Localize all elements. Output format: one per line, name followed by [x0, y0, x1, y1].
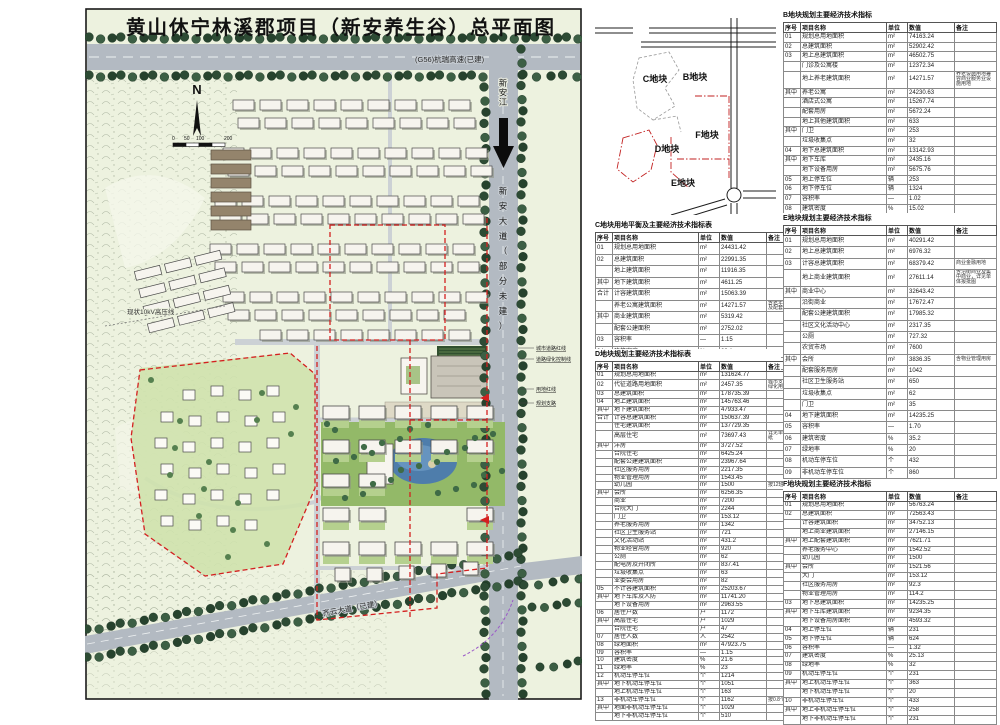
- indicator-table-F: F地块规划主要经济技术指标序号项目名称单位数值备注01规划总用地面积m²5676…: [783, 479, 996, 725]
- table-cell: 56763.24: [908, 502, 955, 511]
- table-row: 其中商业建筑面积m²5319.42: [596, 312, 809, 324]
- table-cell: 02: [784, 247, 801, 258]
- table-cell: 商业金融用地: [955, 258, 997, 269]
- table-cell: m²: [887, 528, 908, 537]
- table-cell: 计容总建筑面积: [801, 258, 887, 269]
- tree-icon: [254, 417, 260, 423]
- table-cell: m²: [887, 555, 908, 564]
- table-cell: 1.70: [908, 422, 955, 433]
- table-cell: 1029: [720, 617, 767, 625]
- table-cell: 个: [699, 689, 720, 697]
- tree-icon: [471, 585, 480, 594]
- townhouse-building: [304, 148, 325, 158]
- table-cell: [955, 195, 997, 205]
- tree-icon: [96, 35, 105, 44]
- table-cell: m²: [887, 502, 908, 511]
- townhouse-building: [319, 118, 340, 128]
- table-row: 养老服务用房m²1342: [596, 522, 809, 530]
- tree-icon: [480, 83, 489, 92]
- courtyard-green: [359, 556, 385, 564]
- table-row: 酒店式公寓m²15267.74: [784, 98, 997, 108]
- tree-icon: [482, 617, 491, 626]
- table-cell: 1500: [720, 482, 767, 490]
- townhouse-building: [345, 244, 366, 254]
- table-cell: 2752.02: [720, 323, 767, 335]
- townhouse-building: [449, 100, 470, 110]
- tree-icon: [415, 73, 424, 82]
- villa-building: [183, 494, 195, 504]
- table-cell: [784, 298, 801, 309]
- tree-icon: [518, 350, 527, 359]
- table-row: 10非机动车停车位个433: [784, 697, 997, 706]
- table-cell: m²: [699, 546, 720, 554]
- tree-icon: [173, 610, 182, 619]
- table-cell: [955, 309, 997, 320]
- table-header: 项目名称: [613, 362, 699, 372]
- townhouse-building: [400, 118, 421, 128]
- table-row: 幼儿园m²1500: [784, 555, 997, 564]
- townhouse-building: [341, 330, 362, 340]
- tree-icon: [481, 569, 490, 578]
- table-cell: [955, 456, 997, 467]
- table-cell: 社区服务用房: [801, 582, 887, 591]
- indicator-table-C: C地块用地平衡及主要经济技术指标表序号项目名称单位数值备注01规划总用地面积m²…: [595, 220, 781, 370]
- townhouse-building: [358, 148, 379, 158]
- table-cell: m²: [699, 458, 720, 466]
- table-cell: [955, 502, 997, 511]
- table-cell: m²: [887, 377, 908, 388]
- table-cell: 02: [596, 379, 613, 391]
- table-cell: 40291.42: [908, 236, 955, 247]
- tree-icon: [517, 118, 526, 127]
- table-cell: 地上其他建筑面积: [801, 117, 887, 127]
- table-cell: 地下停车位: [801, 635, 887, 644]
- table-header: 单位: [699, 233, 720, 243]
- tree-icon: [340, 71, 349, 80]
- table-cell: 地下非机动车停车位: [613, 713, 699, 721]
- table-cell: 地上建筑面积: [613, 399, 699, 407]
- townhouse-building: [431, 196, 452, 206]
- table-row: 02地上总建筑面积m²6976.32: [784, 247, 997, 258]
- table-cell: [784, 399, 801, 410]
- tree-icon: [215, 601, 224, 610]
- table-title: D地块规划主要经济技术指标表: [595, 349, 781, 359]
- table-header: 备注: [955, 23, 997, 33]
- table-cell: 地上总建筑面积: [801, 247, 887, 258]
- table-cell: m²: [887, 617, 908, 626]
- table-cell: [784, 107, 801, 117]
- townhouse-building: [390, 310, 411, 320]
- tree-icon: [482, 253, 491, 262]
- table-cell: 商业建筑面积: [613, 312, 699, 324]
- table-row: 01规划总用地面积m²56763.24: [784, 502, 997, 511]
- tree-icon: [282, 590, 291, 599]
- tree-icon: [518, 132, 527, 141]
- table-cell: 837.41: [720, 562, 767, 570]
- tree-icon: [435, 490, 441, 496]
- tree-icon: [140, 72, 149, 81]
- tree-icon: [517, 81, 526, 90]
- table-cell: m²: [887, 146, 908, 156]
- tree-icon: [212, 71, 221, 80]
- table-cell: 合院住宅: [613, 450, 699, 458]
- table-cell: 10: [784, 697, 801, 706]
- table-cell: [955, 411, 997, 422]
- tree-icon: [517, 482, 526, 491]
- townhouse-building: [385, 148, 406, 158]
- table-cell: —: [699, 649, 720, 657]
- tree-icon: [482, 108, 491, 117]
- table-cell: 860: [908, 467, 955, 478]
- tree-icon: [324, 421, 330, 427]
- table-cell: m²: [699, 490, 720, 498]
- tree-icon: [351, 454, 357, 460]
- table-cell: [955, 422, 997, 433]
- table-cell: 05: [784, 422, 801, 433]
- table-row: 配套公建建筑面积m²17985.32: [784, 309, 997, 320]
- table-row: 04地下总建筑面积m²13142.93: [784, 146, 997, 156]
- table-cell: 04: [784, 411, 801, 422]
- tree-icon: [517, 446, 526, 455]
- tree-icon: [458, 72, 467, 81]
- table-cell: 431.2: [720, 538, 767, 546]
- table-cell: 07: [784, 653, 801, 662]
- townhouse-building: [427, 118, 448, 128]
- tree-icon: [167, 472, 173, 478]
- tree-icon: [505, 580, 514, 589]
- table-cell: 个: [887, 706, 908, 715]
- table-cell: 1172: [720, 609, 767, 617]
- table-cell: 32643.42: [908, 286, 955, 297]
- table-cell: 容积率: [801, 644, 887, 653]
- leader-annotation: 道路绿化控制线: [536, 356, 571, 363]
- tree-icon: [459, 588, 468, 597]
- townhouse-building: [372, 244, 393, 254]
- townhouse-building: [363, 310, 384, 320]
- table-cell: [596, 466, 613, 474]
- table-title: B地块规划主要经济技术指标: [783, 10, 996, 20]
- townhouse-building: [274, 214, 295, 224]
- table-cell: 01: [784, 33, 801, 43]
- table-cell: 150637.39: [720, 415, 767, 423]
- tree-icon: [108, 34, 117, 43]
- table-cell: m²: [699, 289, 720, 301]
- brown-roof-building: [211, 150, 251, 160]
- apartment-building: [467, 406, 493, 419]
- tree-icon: [517, 190, 526, 199]
- apartment-building: [323, 508, 349, 521]
- table-cell: 2457.35: [720, 379, 767, 391]
- table-cell: m²: [887, 62, 908, 72]
- table-cell: 3727.52: [720, 442, 767, 450]
- table-row: 09机动车停车位个231: [784, 671, 997, 680]
- table-cell: 14235.25: [908, 599, 955, 608]
- townhouse-building: [301, 214, 322, 224]
- tree-icon: [481, 279, 490, 288]
- table-cell: [955, 697, 997, 706]
- table-cell: 容积率: [801, 195, 887, 205]
- table-cell: %: [887, 662, 908, 671]
- table-row: 业委会用房m²82: [596, 577, 809, 585]
- townhouse-building: [265, 118, 286, 128]
- tree-icon: [128, 73, 137, 82]
- table-cell: m²: [887, 166, 908, 176]
- tree-icon: [264, 541, 270, 547]
- tree-icon: [574, 35, 582, 44]
- table-row: 地上机动车停车位个163: [596, 689, 809, 697]
- table-cell: 14271.57: [720, 300, 767, 312]
- apartment-building: [467, 542, 493, 555]
- table-cell: —: [699, 335, 720, 347]
- tree-icon: [333, 458, 339, 464]
- table-row: 其中高层住宅户1029: [596, 617, 809, 625]
- table-cell: 其中: [596, 312, 613, 324]
- tree-icon: [160, 73, 169, 82]
- table-cell: 垃圾收集点: [801, 136, 887, 146]
- table-cell: [596, 506, 613, 514]
- townhouse-building: [404, 196, 425, 206]
- tree-icon: [558, 71, 567, 80]
- table-row: 09容积率—1.15: [596, 649, 809, 657]
- tree-icon: [201, 486, 207, 492]
- table-cell: m²: [699, 391, 720, 399]
- tree-icon: [194, 635, 203, 644]
- table-cell: 5675.76: [908, 166, 955, 176]
- tree-icon: [393, 600, 402, 609]
- table-row: 其中会所m²3836.35含物业管理用房: [784, 354, 997, 365]
- tree-icon: [480, 628, 489, 637]
- table-cell: [784, 320, 801, 331]
- townhouse-building: [453, 244, 474, 254]
- courtyard-green: [467, 522, 493, 530]
- townhouse-building: [412, 292, 433, 302]
- townhouse-building: [269, 196, 290, 206]
- table-cell: 1162: [720, 697, 767, 705]
- tree-icon: [519, 362, 528, 371]
- table-cell: [955, 555, 997, 564]
- table-cell: m²: [887, 608, 908, 617]
- tree-icon: [117, 71, 126, 80]
- tree-icon: [481, 133, 490, 142]
- table-cell: 社区卫生服务站: [801, 377, 887, 388]
- table-cell: 地下车库: [801, 156, 887, 166]
- table-row: 地下非机动车停车位个510: [596, 713, 809, 721]
- tree-icon: [248, 595, 257, 604]
- table-cell: 总建筑面积: [801, 42, 887, 52]
- table-cell: [596, 569, 613, 577]
- table-header: 序号: [784, 226, 801, 236]
- tree-icon: [438, 591, 447, 600]
- tree-icon: [148, 71, 157, 80]
- table-cell: m²: [699, 300, 720, 312]
- tree-icon: [256, 73, 265, 82]
- tree-icon: [379, 440, 385, 446]
- table-row: 物业经营用房m²920: [596, 546, 809, 554]
- apartment-building: [359, 406, 385, 419]
- table-row: 物业管理用房m²114.2: [784, 591, 997, 600]
- table-cell: [955, 528, 997, 537]
- tree-icon: [319, 73, 328, 82]
- table-cell: 2317.35: [908, 320, 955, 331]
- tree-icon: [447, 588, 456, 597]
- table-cell: 地上建筑面积: [613, 266, 699, 278]
- table-cell: 17672.47: [908, 298, 955, 309]
- table-cell: 04: [596, 399, 613, 407]
- table-cell: 计容建筑面积: [613, 289, 699, 301]
- tree-icon: [206, 459, 212, 465]
- courtyard-green: [359, 522, 385, 530]
- table-cell: 计容总建筑面积: [613, 415, 699, 423]
- table-cell: 62: [908, 388, 955, 399]
- table-title: E地块规划主要经济技术指标: [783, 213, 996, 223]
- table-cell: 地下设备用房: [613, 601, 699, 609]
- table-cell: [955, 166, 997, 176]
- leader-annotation: 城市道路红线: [536, 345, 566, 352]
- townhouse-building: [323, 196, 344, 206]
- tree-icon: [293, 404, 299, 410]
- townhouse-building: [314, 330, 335, 340]
- table-cell: 其中: [784, 537, 801, 546]
- table-cell: [955, 635, 997, 644]
- tree-icon: [519, 106, 528, 115]
- table-row: 10建筑密度%21.6: [596, 657, 809, 665]
- tower-building: [399, 566, 414, 579]
- townhouse-building: [431, 262, 452, 272]
- tree-icon: [235, 500, 241, 506]
- table-row: 地上商业建筑面积m²27611.14含沿街商业及集中商业，详见单体报批图: [784, 269, 997, 286]
- townhouse-building: [436, 214, 457, 224]
- table-cell: [955, 52, 997, 62]
- tree-icon: [480, 664, 489, 673]
- tree-icon: [517, 263, 526, 272]
- brown-roof-building: [211, 192, 251, 202]
- table-cell: m²: [699, 601, 720, 609]
- tree-icon: [244, 71, 253, 80]
- table-cell: [596, 522, 613, 530]
- table-row: 计容建筑面积m²34752.13: [784, 519, 997, 528]
- townhouse-building: [426, 244, 447, 254]
- table-cell: 农贸市场: [801, 343, 887, 354]
- table-cell: [955, 185, 997, 195]
- table-cell: 7200: [720, 498, 767, 506]
- table-row: 05地下停车位辆624: [784, 635, 997, 644]
- table-cell: [955, 117, 997, 127]
- table-cell: 72563.43: [908, 510, 955, 519]
- table-cell: [596, 530, 613, 538]
- table-cell: [955, 680, 997, 689]
- table-cell: 个: [887, 697, 908, 706]
- townhouse-building: [318, 244, 339, 254]
- table-cell: %: [699, 665, 720, 673]
- townhouse-building: [422, 330, 443, 340]
- table-cell: m²: [887, 33, 908, 43]
- tree-icon: [96, 73, 105, 82]
- table-cell: 2963.55: [720, 601, 767, 609]
- table-cell: [596, 577, 613, 585]
- table-cell: 规划总用地面积: [801, 502, 887, 511]
- villa-building: [245, 520, 257, 530]
- table-cell: 规划总用地面积: [613, 243, 699, 255]
- table-header: 序号: [784, 23, 801, 33]
- table-cell: 5319.42: [720, 312, 767, 324]
- table-cell: 其中: [784, 564, 801, 573]
- townhouse-building: [382, 214, 403, 224]
- townhouse-building: [368, 330, 389, 340]
- table-cell: 1051: [720, 681, 767, 689]
- table-cell: [784, 377, 801, 388]
- table-cell: 洋房: [613, 442, 699, 450]
- table-row: 07居住人数人2542: [596, 633, 809, 641]
- apartment-building: [359, 542, 385, 555]
- table-cell: [784, 689, 801, 698]
- table-cell: 6425.24: [720, 450, 767, 458]
- table-header: 单位: [887, 23, 908, 33]
- table-cell: 配套公建建筑面积: [613, 458, 699, 466]
- tree-icon: [425, 422, 431, 428]
- tree-icon: [85, 33, 93, 42]
- table-cell: [955, 127, 997, 137]
- table-cell: 1.02: [908, 195, 955, 205]
- table-row: 其中地下车库建筑面积m²9234.35: [784, 608, 997, 617]
- tree-icon: [518, 533, 527, 542]
- tree-icon: [299, 72, 308, 81]
- table-cell: [955, 510, 997, 519]
- villa-building: [239, 442, 251, 452]
- table-cell: 个: [887, 671, 908, 680]
- table-row: 03地下总建筑面积m²14235.25: [784, 599, 997, 608]
- table-cell: 会所: [801, 354, 887, 365]
- table-cell: 08: [596, 641, 613, 649]
- table-cell: 82: [720, 577, 767, 585]
- table-row: 01规划总用地面积m²74163.24: [784, 33, 997, 43]
- tree-icon: [148, 377, 154, 383]
- townhouse-building: [404, 262, 425, 272]
- townhouse-building: [250, 148, 271, 158]
- table-row: 地上养老建筑面积m²14271.57养老设施用地兼容商业服务业设施用地: [784, 71, 997, 88]
- table-cell: 住宅建筑面积: [613, 423, 699, 431]
- table-cell: 06: [784, 185, 801, 195]
- table-cell: 433: [908, 697, 955, 706]
- tree-icon: [519, 507, 528, 516]
- table-cell: 46502.75: [908, 52, 955, 62]
- table-cell: 规划总用地面积: [801, 236, 887, 247]
- table-cell: [955, 88, 997, 98]
- table-cell: 03: [784, 258, 801, 269]
- table-cell: m²: [699, 562, 720, 570]
- table-cell: 商业中心: [801, 286, 887, 297]
- tree-icon: [481, 206, 490, 215]
- townhouse-building: [296, 196, 317, 206]
- villa-building: [189, 520, 201, 530]
- table-cell: 1542.52: [908, 546, 955, 555]
- tree-icon: [149, 641, 158, 650]
- table-cell: 02: [784, 510, 801, 519]
- table-cell: m²: [699, 466, 720, 474]
- courtyard-green: [359, 420, 385, 428]
- townhouse-building: [439, 292, 460, 302]
- table-cell: 363: [908, 680, 955, 689]
- table-cell: 2542: [720, 633, 767, 641]
- table-row: 垃圾收集点m²63: [596, 569, 809, 577]
- tree-icon: [519, 252, 528, 261]
- courtyard-green: [395, 454, 421, 462]
- table-cell: 其中: [784, 127, 801, 137]
- table-row: 03总建筑面积m²178735.39: [596, 391, 809, 399]
- table-cell: 624: [908, 635, 955, 644]
- tree-icon: [575, 599, 582, 607]
- tree-icon: [519, 179, 528, 188]
- townhouse-building: [336, 310, 357, 320]
